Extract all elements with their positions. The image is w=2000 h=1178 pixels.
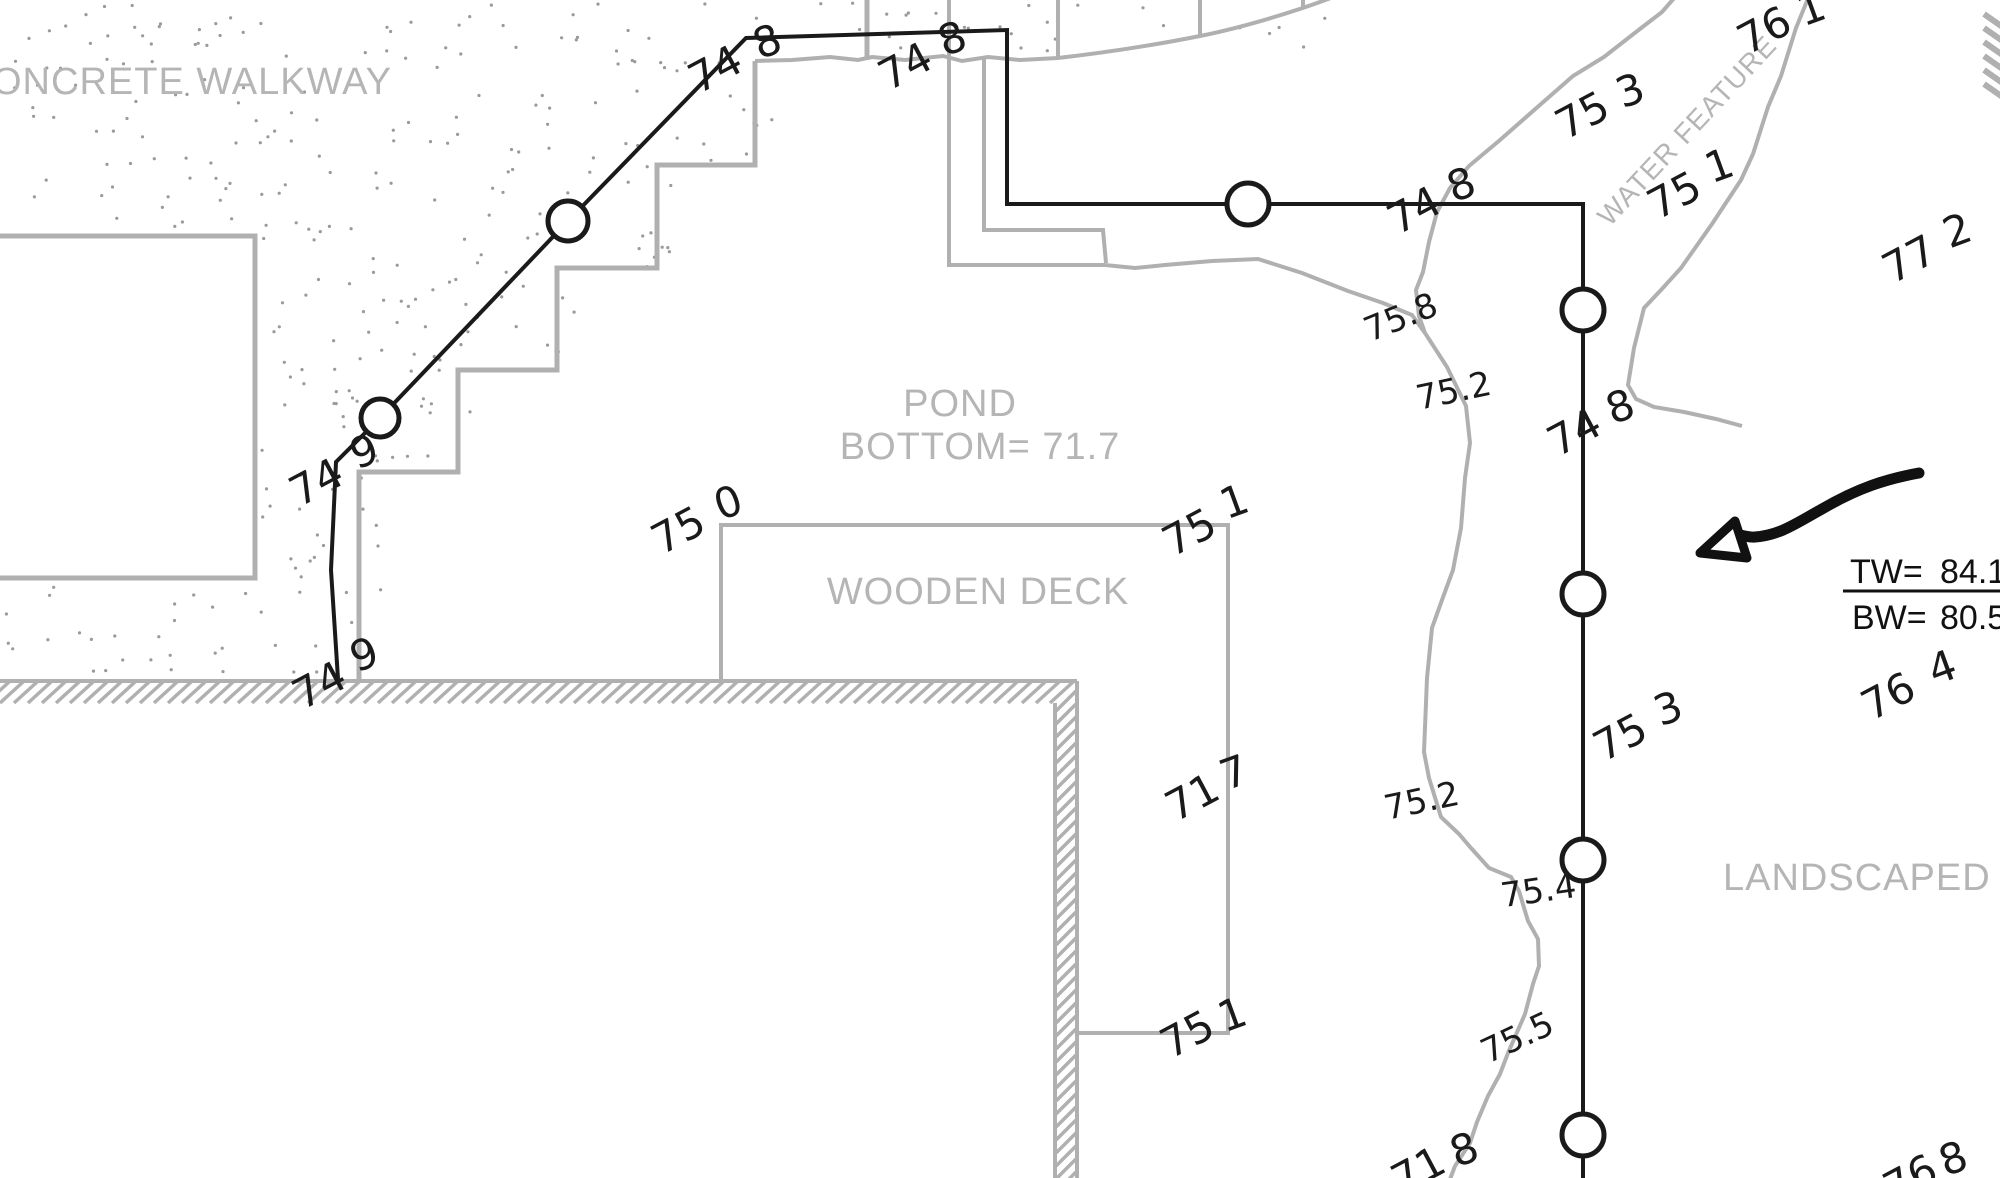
spot-elevation-main: 74 [1379, 176, 1449, 244]
spot-elevation-main: 75 [1585, 703, 1655, 771]
spillway-channel-left [949, 0, 1105, 265]
spot-elevation-decimal: 0 [707, 475, 749, 530]
pond-label: POND [903, 383, 1017, 425]
bw-value: 80.5 [1940, 599, 2000, 637]
wall-node-marker [548, 201, 588, 241]
spot-elevation-decimal: 8 [1599, 379, 1641, 434]
annotation-arrow-tail [1727, 473, 1919, 537]
spot-elevation-decimal: 4 [1921, 640, 1963, 695]
planter-outline [0, 236, 255, 578]
spot-elevation-decimal: 1 [1213, 474, 1255, 529]
corner-wall-hatching [1984, 14, 2000, 98]
contour-label: 75.2 [1381, 774, 1463, 829]
spot-elevation-main: 76 [1853, 662, 1923, 730]
spot-elevation-main: 77 [1874, 225, 1944, 293]
paver-band-edge [755, 0, 1336, 61]
contour-label: 75.4 [1498, 866, 1579, 916]
spot-elevation-labels: 74 8 74 8 74 8 75 3 75 1 77 2 74 8 74 9 … [281, 0, 1978, 1178]
contour-label: 75.5 [1475, 1004, 1561, 1072]
spot-elevation-main: 71 [1157, 763, 1227, 831]
spot-elevation-main: 74 [284, 651, 354, 719]
site-plan-canvas: TW= 84.1 BW= 80.5 ONCRETE WALKWAY POND B… [0, 0, 2000, 1178]
site-plan-svg: TW= 84.1 BW= 80.5 ONCRETE WALKWAY POND B… [0, 0, 2000, 1178]
spot-elevation-decimal: 1 [1698, 138, 1740, 193]
pond-bottom-label: BOTTOM= 71.7 [840, 426, 1121, 468]
spot-elevation-main: 71 [1383, 1136, 1453, 1178]
landscaped-area-label: LANDSCAPED AREA [1723, 857, 2000, 899]
pond-step-outline [359, 0, 867, 679]
wooden-deck-label: WOODEN DECK [827, 571, 1129, 613]
bw-label: BW= [1852, 599, 1927, 637]
spot-elevation-decimal: 3 [1647, 681, 1689, 736]
wall-node-marker [1562, 289, 1604, 331]
spot-elevation-main: 75 [1152, 1000, 1222, 1068]
spot-elevation-main: 74 [870, 32, 940, 100]
contour-labels: 75.8 75.2 75.2 75.4 75.5 [1358, 285, 1578, 1072]
spot-elevation-decimal: 3 [1609, 63, 1651, 118]
tw-label: TW= [1850, 553, 1923, 591]
wall-node-marker [1562, 1114, 1604, 1156]
annotation-arrow [1700, 473, 1919, 558]
spot-elevation-decimal: 8 [1443, 1122, 1485, 1177]
spot-elevation-decimal: 8 [746, 14, 788, 69]
wall-node-marker [1562, 573, 1604, 615]
spillway-channel-right [984, 57, 1106, 263]
spot-elevation-decimal: 9 [343, 627, 385, 682]
spot-elevation-main: 75 [1154, 498, 1224, 566]
spot-elevation-main: 75 [643, 496, 713, 564]
walkway-hatching [0, 682, 1076, 1178]
concrete-walkway-label: ONCRETE WALKWAY [0, 61, 392, 103]
spot-elevation-main: 74 [1539, 398, 1609, 466]
wall-elevation-note: TW= 84.1 BW= 80.5 [1843, 553, 2000, 637]
spot-elevation-decimal: 8 [1932, 1131, 1974, 1178]
contour-label: 75.2 [1413, 364, 1495, 419]
tw-value: 84.1 [1940, 553, 2000, 591]
annotation-arrowhead-icon [1700, 521, 1747, 558]
wall-node-marker [1227, 183, 1269, 225]
spot-elevation-decimal: 2 [1936, 203, 1978, 258]
